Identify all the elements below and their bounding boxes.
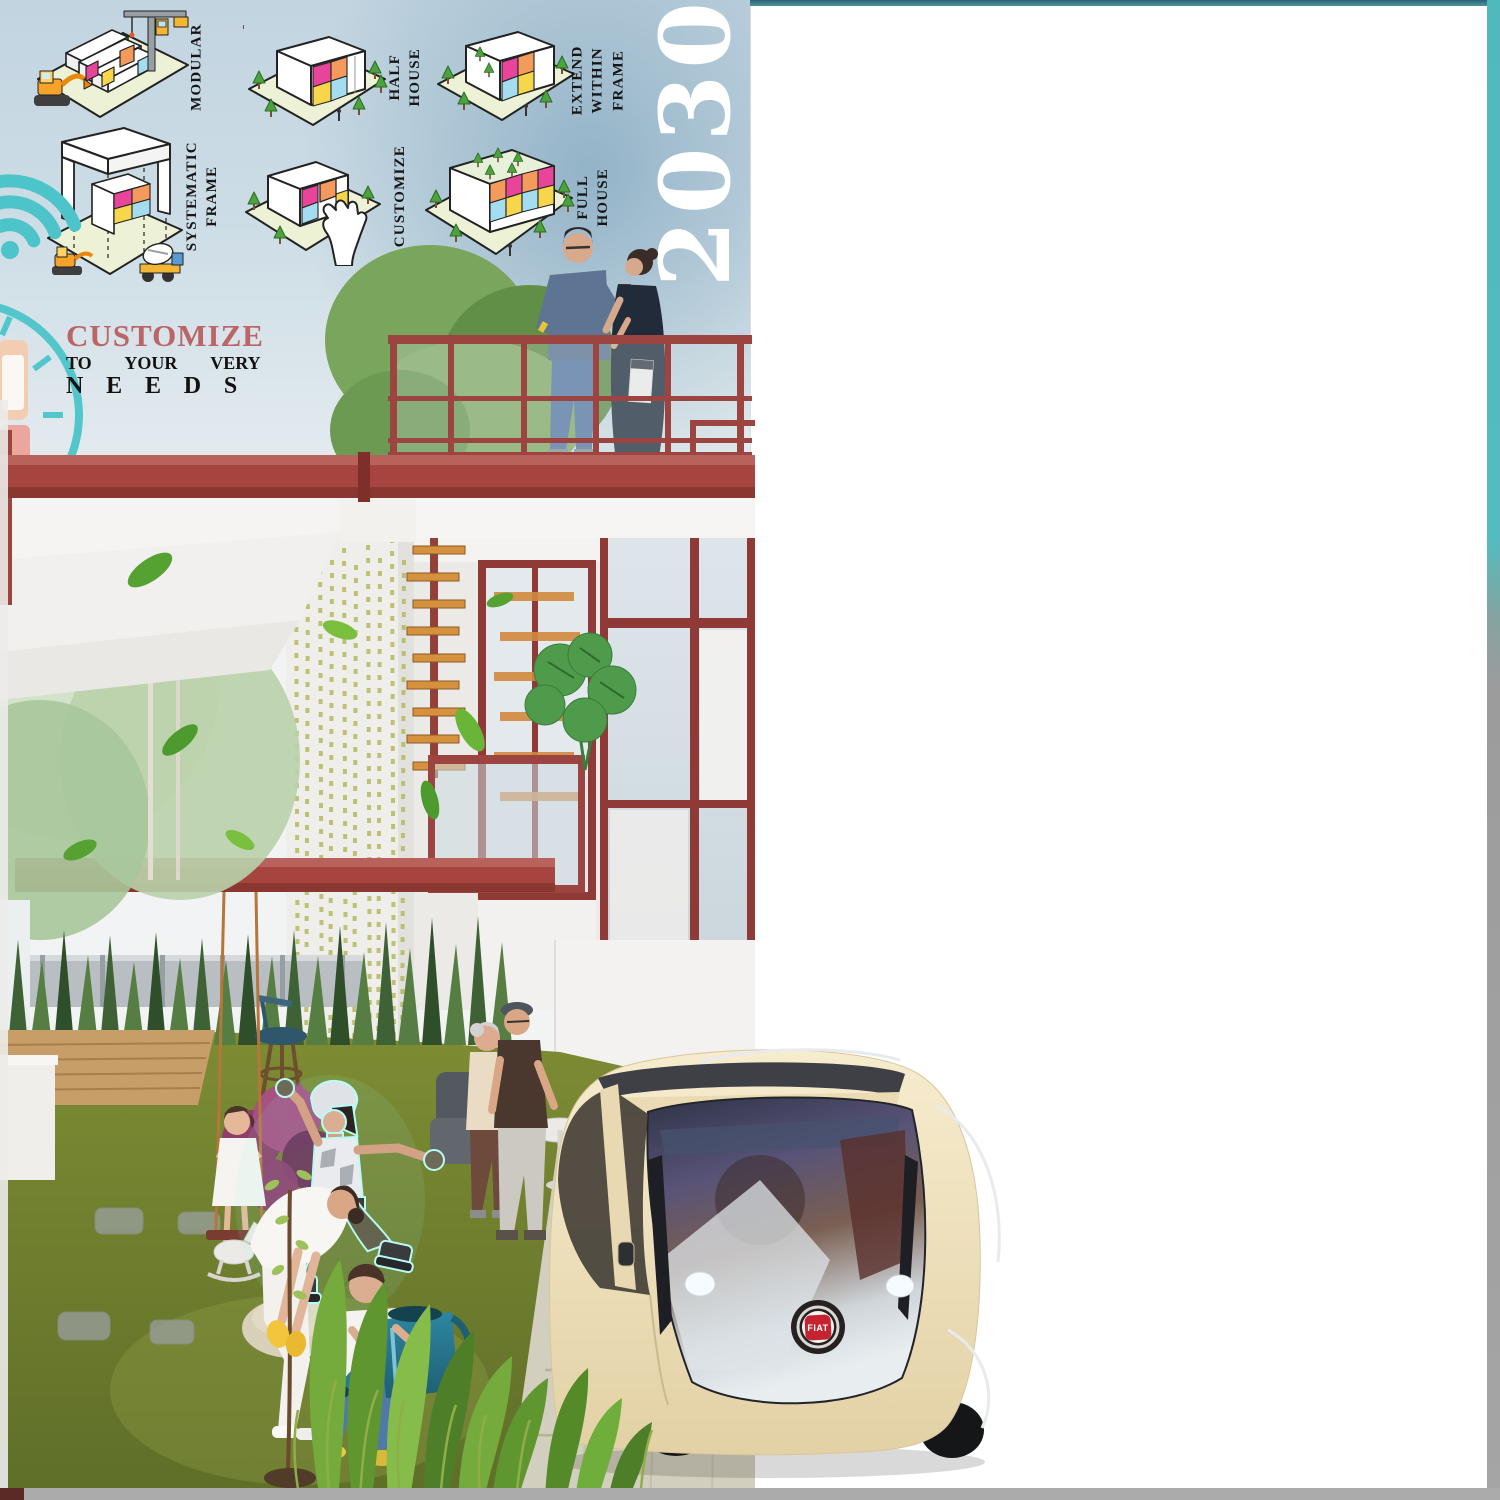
tree-icon [243,25,249,29]
extend-within-frame-diagram-icon [434,22,576,126]
half-house-diagram-icon [243,25,391,133]
car-windshield [647,1097,925,1403]
presentation-board: MODULAR HALF HOUSE EXTEND WITHIN FRAME S… [0,0,1500,1500]
terrace [0,227,755,538]
panel-left-edge [0,400,8,1488]
label-modular: MODULAR [175,2,219,132]
gray-bottom-border [0,1488,1500,1500]
house-render-scene: FIAT [0,200,1040,1500]
steel-beam-main [0,452,755,502]
label-half-house: HALF HOUSE [383,12,427,142]
teal-right-border [1487,0,1500,1500]
window-large [600,495,755,1010]
fiat-badge: FIAT [791,1300,845,1354]
fiat-badge-text: FIAT [807,1323,828,1333]
teal-top-border [750,0,1500,6]
label-extend-within-frame: EXTEND WITHIN FRAME [570,15,626,145]
